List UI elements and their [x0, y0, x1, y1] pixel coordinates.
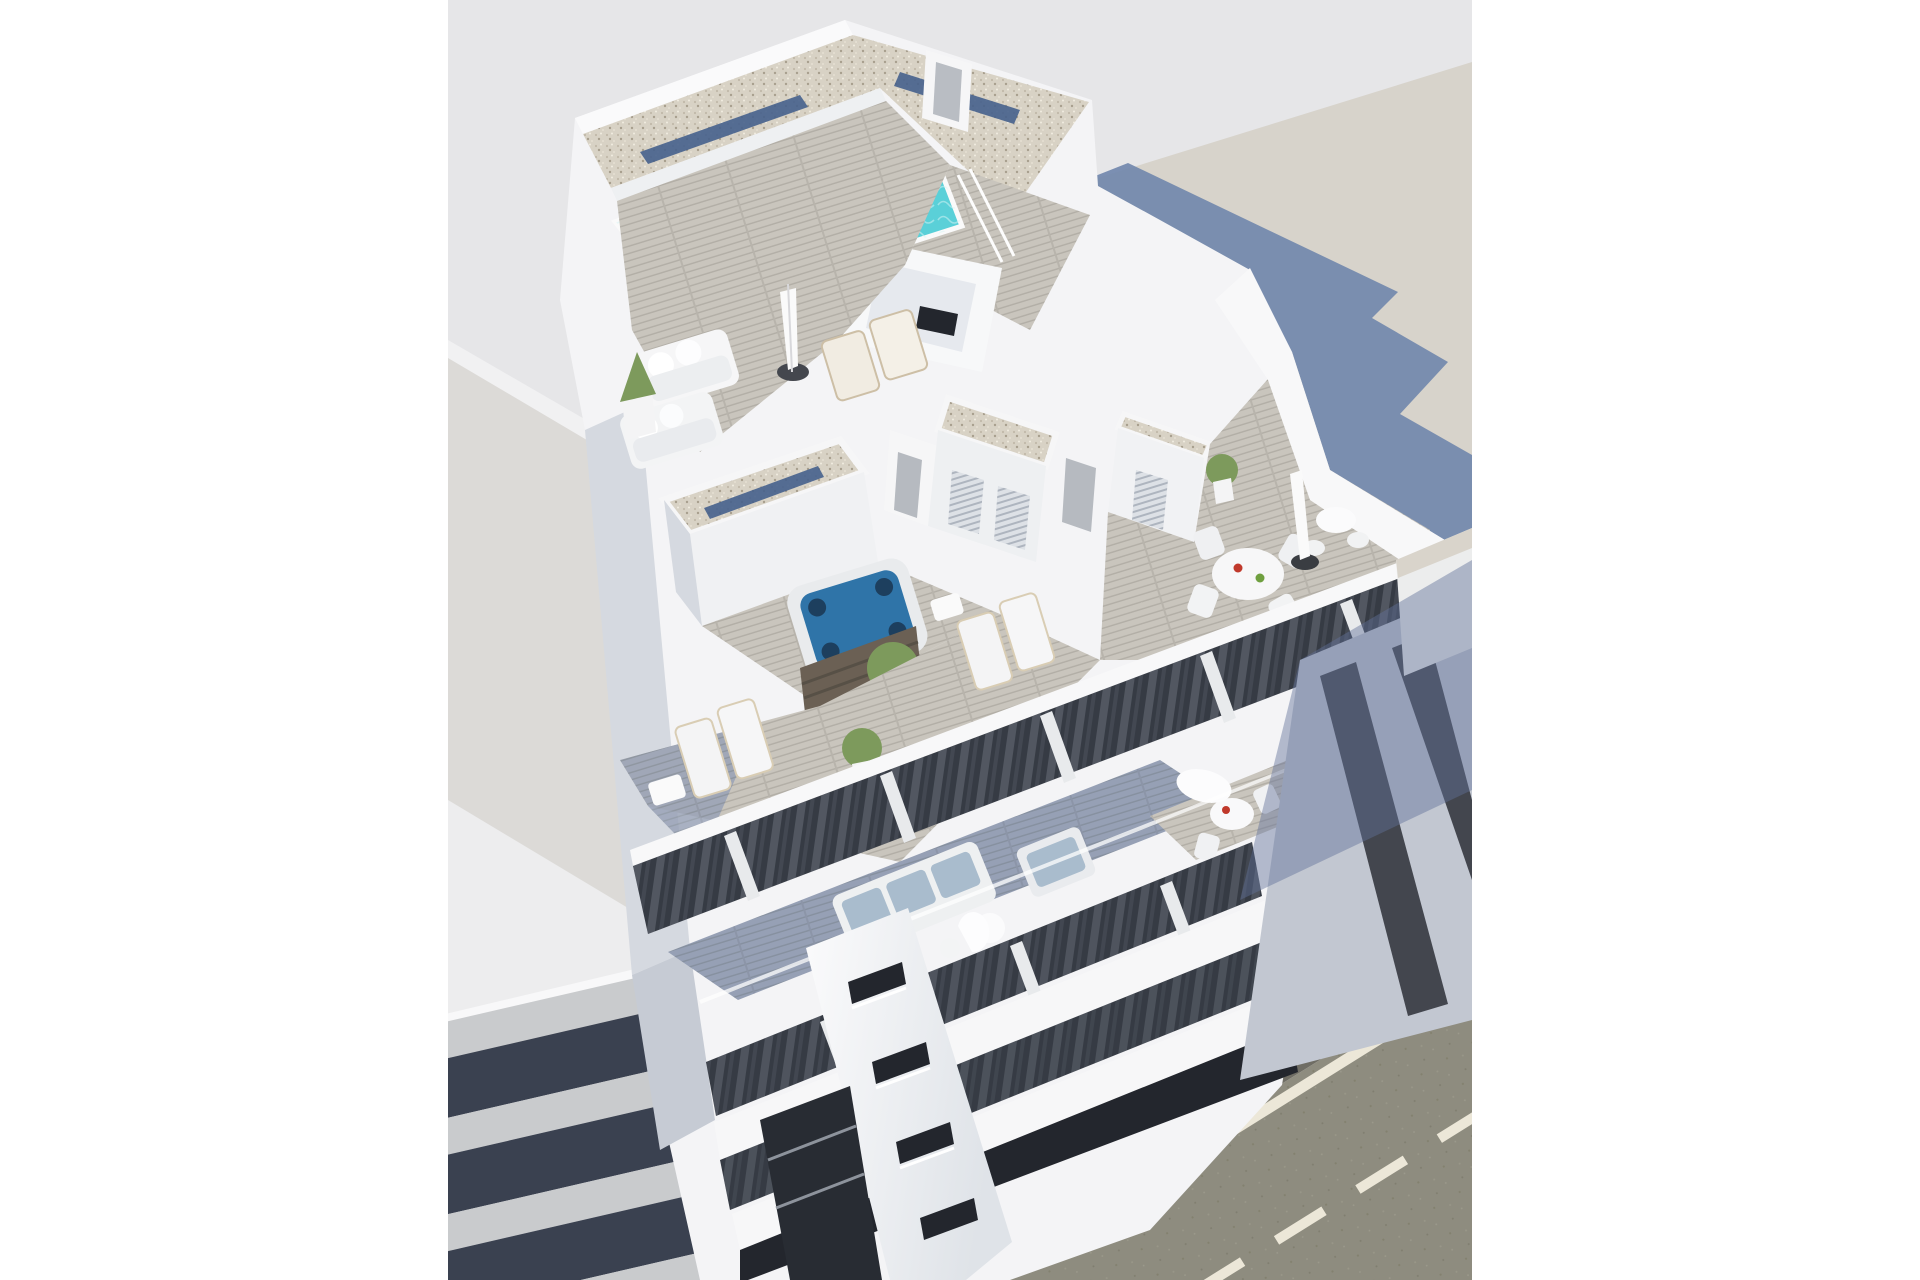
- round-side-table: [940, 938, 960, 958]
- louvered-window: [1132, 470, 1168, 530]
- table-setting-red: [1234, 564, 1243, 573]
- roof-access-door: [933, 62, 962, 122]
- terrace-door: [894, 452, 922, 518]
- render-canvas: [0, 0, 1920, 1280]
- round-table: [1210, 798, 1254, 830]
- terrace-door: [1062, 458, 1096, 532]
- table-setting-red: [1222, 806, 1230, 814]
- bar-stool: [1347, 532, 1369, 548]
- table-setting-green: [1256, 574, 1265, 583]
- louvered-window: [948, 470, 984, 534]
- louvered-window: [994, 486, 1030, 550]
- round-dining-table: [1212, 548, 1284, 600]
- scene-svg: [0, 0, 1920, 1280]
- plant-pot: [1213, 478, 1234, 504]
- bar-table: [1316, 507, 1356, 533]
